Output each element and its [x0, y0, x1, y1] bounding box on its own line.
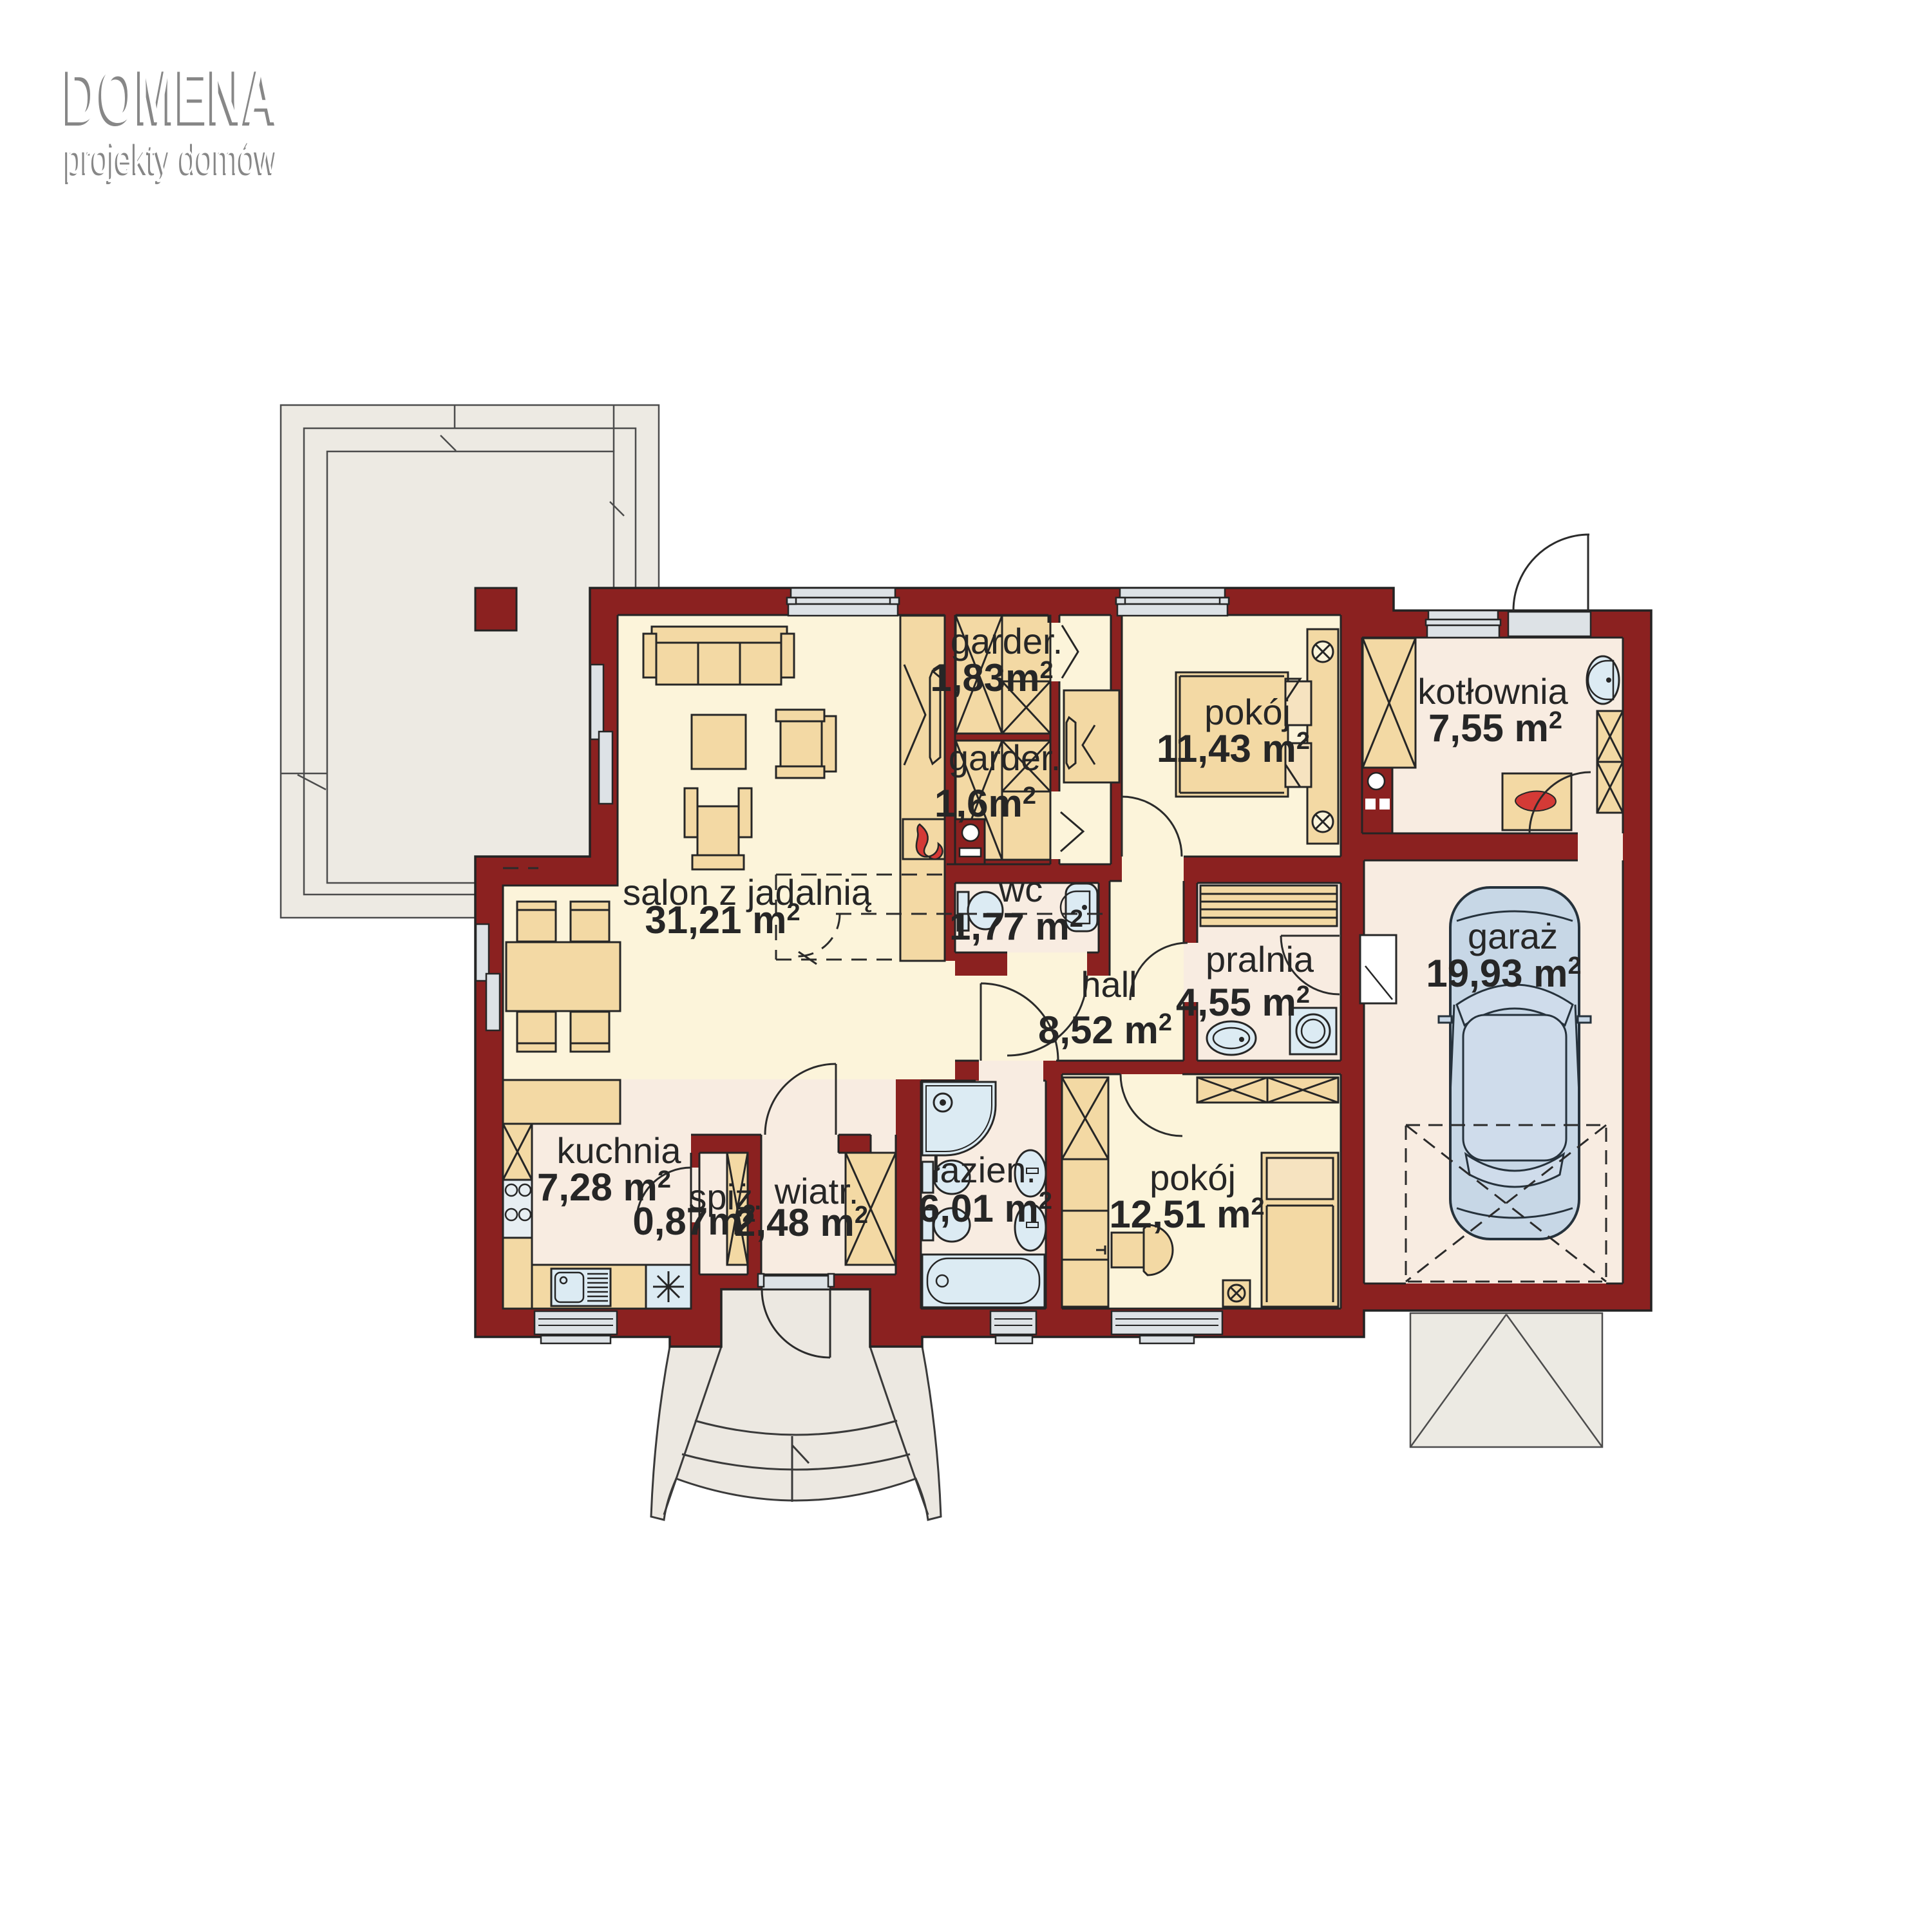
- svg-text:8,52 m2: 8,52 m2: [1038, 1009, 1172, 1052]
- svg-text:łazien.: łazien.: [932, 1150, 1036, 1190]
- svg-text:pralnia: pralnia: [1206, 939, 1314, 980]
- svg-text:DOMENA: DOMENA: [64, 52, 278, 139]
- svg-text:6,01 m2: 6,01 m2: [918, 1187, 1052, 1230]
- svg-text:1,83m2: 1,83m2: [930, 656, 1053, 699]
- svg-text:projekty domów: projekty domów: [65, 135, 278, 183]
- svg-text:1,77 m2: 1,77 m2: [949, 905, 1083, 948]
- svg-text:hall: hall: [1081, 964, 1137, 1005]
- svg-text:12,51 m2: 12,51 m2: [1109, 1193, 1264, 1236]
- svg-text:garder.: garder.: [949, 737, 1061, 778]
- svg-text:1,6m2: 1,6m2: [934, 782, 1036, 825]
- svg-text:11,43 m2: 11,43 m2: [1157, 727, 1310, 770]
- svg-text:pokój: pokój: [1150, 1157, 1236, 1198]
- svg-text:garder.: garder.: [951, 621, 1063, 661]
- svg-text:19,93 m2: 19,93 m2: [1426, 952, 1581, 995]
- svg-text:2,48 m2: 2,48 m2: [734, 1201, 868, 1244]
- svg-text:wc: wc: [998, 869, 1043, 909]
- svg-text:garaż: garaż: [1468, 916, 1558, 956]
- svg-text:kotłownia: kotłownia: [1417, 671, 1568, 712]
- svg-text:pokój: pokój: [1204, 692, 1291, 732]
- svg-text:4,55 m2: 4,55 m2: [1176, 981, 1310, 1024]
- svg-text:7,55 m2: 7,55 m2: [1428, 706, 1562, 750]
- svg-text:kuchnia: kuchnia: [556, 1130, 681, 1171]
- svg-text:31,21 m2: 31,21 m2: [645, 898, 800, 942]
